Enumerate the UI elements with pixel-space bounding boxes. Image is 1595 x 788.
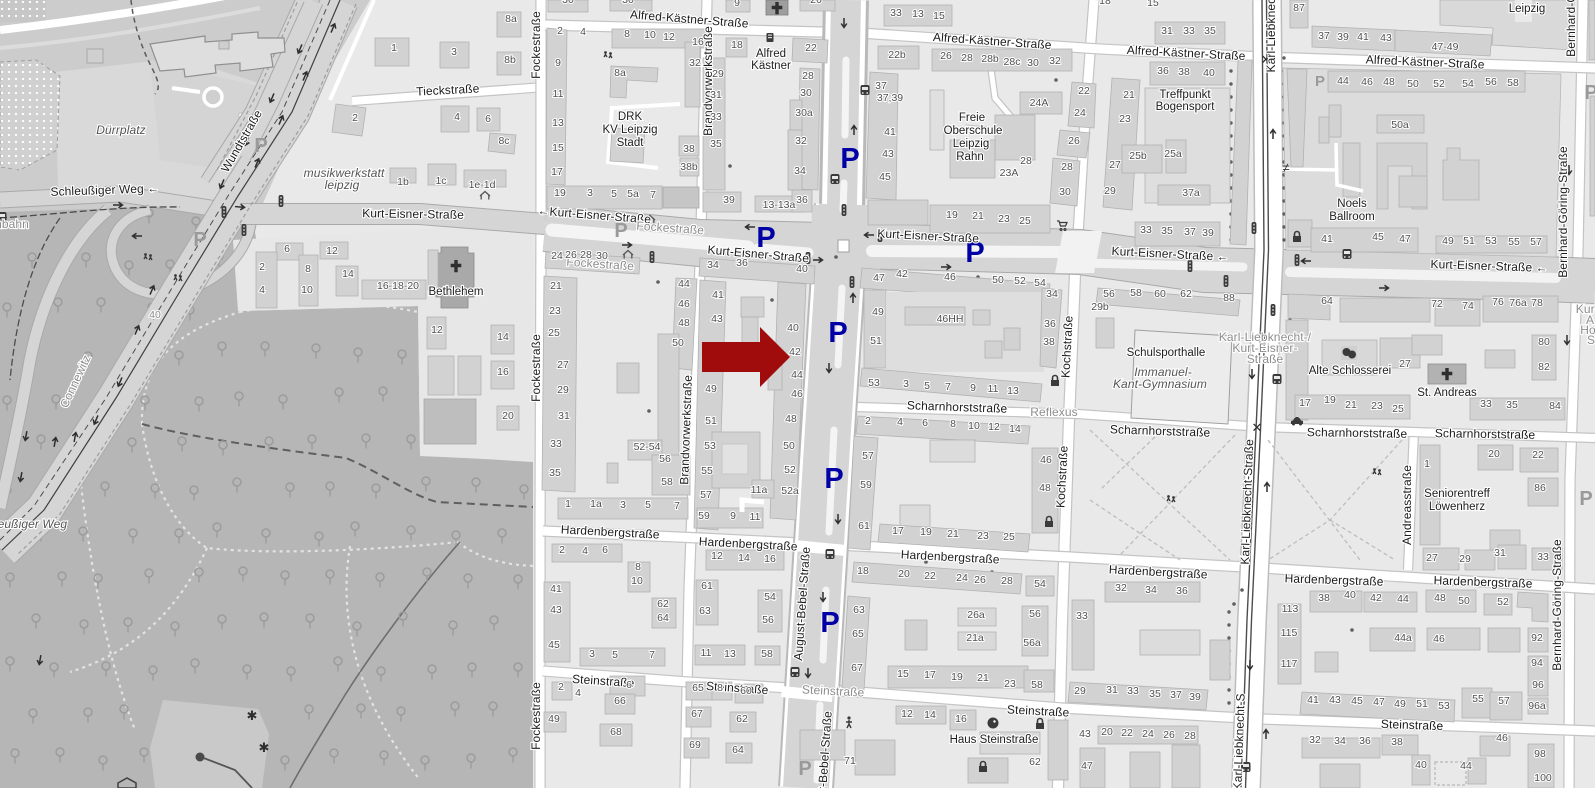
- svg-text:45: 45: [1351, 695, 1363, 707]
- svg-text:Bernhard-Göring-Straße: Bernhard-Göring-Straße: [1556, 146, 1570, 278]
- svg-text:43: 43: [550, 604, 562, 616]
- svg-text:21: 21: [977, 672, 989, 684]
- svg-text:56: 56: [659, 453, 671, 465]
- svg-text:8c: 8c: [498, 135, 509, 147]
- svg-text:56: 56: [1103, 288, 1115, 300]
- svg-text:49: 49: [548, 713, 560, 725]
- svg-text:62: 62: [657, 598, 669, 610]
- svg-text:60: 60: [1154, 288, 1166, 300]
- svg-text:57: 57: [1530, 236, 1542, 248]
- svg-text:64: 64: [732, 744, 744, 756]
- svg-text:50: 50: [1458, 595, 1470, 607]
- svg-text:Treffpunkt: Treffpunkt: [1159, 89, 1211, 101]
- svg-text:13: 13: [912, 8, 924, 20]
- svg-text:12: 12: [901, 708, 913, 720]
- svg-text:34: 34: [794, 165, 806, 177]
- svg-text:60: 60: [740, 685, 752, 697]
- svg-text:29: 29: [1459, 553, 1471, 565]
- svg-text:32: 32: [795, 135, 807, 147]
- svg-text:30: 30: [596, 250, 608, 262]
- svg-text:25b: 25b: [1129, 150, 1147, 162]
- svg-text:19: 19: [920, 526, 932, 538]
- svg-text:94: 94: [1531, 657, 1543, 669]
- svg-text:32: 32: [1049, 55, 1061, 67]
- svg-text:68: 68: [610, 726, 622, 738]
- svg-text:28b: 28b: [981, 53, 999, 65]
- svg-text:65: 65: [852, 628, 864, 640]
- svg-text:4: 4: [580, 26, 586, 38]
- svg-text:67: 67: [851, 662, 863, 674]
- svg-text:58: 58: [761, 648, 773, 660]
- svg-text:45: 45: [1372, 231, 1384, 243]
- svg-text:28: 28: [1184, 730, 1196, 742]
- svg-text:57: 57: [1498, 695, 1510, 707]
- svg-text:47: 47: [1081, 760, 1093, 772]
- svg-text:P: P: [828, 317, 847, 349]
- svg-text:49: 49: [1394, 698, 1406, 710]
- svg-text:21: 21: [550, 280, 562, 292]
- svg-text:S: S: [1587, 333, 1595, 347]
- svg-text:20: 20: [1488, 448, 1500, 460]
- svg-text:52: 52: [1497, 596, 1509, 608]
- svg-text:P: P: [820, 607, 839, 639]
- svg-text:40: 40: [796, 263, 808, 275]
- svg-text:20: 20: [502, 410, 514, 422]
- svg-text:18: 18: [731, 39, 743, 51]
- svg-text:44: 44: [1337, 75, 1349, 87]
- svg-text:18: 18: [857, 565, 869, 577]
- svg-text:14: 14: [738, 552, 750, 564]
- svg-text:Karl-Liebknecht: Karl-Liebknecht: [1264, 0, 1278, 72]
- svg-text:6: 6: [626, 679, 632, 691]
- svg-text:9: 9: [555, 57, 561, 69]
- svg-text:Rahn: Rahn: [956, 151, 984, 163]
- svg-text:17: 17: [551, 166, 563, 178]
- svg-text:30: 30: [562, 0, 574, 6]
- svg-text:26: 26: [810, 0, 822, 6]
- svg-text:13: 13: [552, 117, 564, 129]
- svg-text:50: 50: [783, 440, 795, 452]
- svg-text:11a: 11a: [751, 484, 768, 496]
- svg-text:2: 2: [352, 112, 358, 124]
- svg-text:39: 39: [723, 194, 735, 206]
- svg-text:72: 72: [1431, 298, 1443, 310]
- svg-text:22: 22: [924, 570, 936, 582]
- svg-text:8a: 8a: [614, 67, 626, 79]
- svg-text:57: 57: [700, 489, 712, 501]
- svg-text:34: 34: [707, 259, 719, 271]
- svg-text:37: 37: [1170, 689, 1182, 701]
- svg-text:22: 22: [805, 42, 817, 54]
- svg-text:32: 32: [1309, 734, 1321, 746]
- svg-text:43: 43: [1380, 32, 1392, 44]
- svg-text:47: 47: [873, 272, 885, 284]
- svg-text:26: 26: [1163, 729, 1175, 741]
- svg-text:56: 56: [1485, 76, 1497, 88]
- svg-text:53: 53: [704, 440, 716, 452]
- svg-text:62: 62: [1180, 288, 1192, 300]
- svg-text:35: 35: [1161, 225, 1173, 237]
- svg-text:35: 35: [549, 467, 561, 479]
- svg-text:46: 46: [944, 271, 956, 283]
- svg-text:15: 15: [933, 10, 945, 22]
- svg-text:nbahn: nbahn: [0, 217, 29, 231]
- svg-text:16: 16: [497, 366, 509, 378]
- svg-text:23: 23: [1371, 400, 1383, 412]
- svg-text:8: 8: [305, 263, 311, 275]
- svg-text:Stadt: Stadt: [617, 137, 645, 149]
- svg-text:55: 55: [701, 465, 713, 477]
- svg-text:37: 37: [1318, 30, 1330, 42]
- svg-text:55: 55: [1508, 236, 1520, 248]
- svg-text:Fockestraße: Fockestraße: [529, 11, 543, 79]
- svg-text:43: 43: [1329, 694, 1341, 706]
- svg-text:29b: 29b: [1091, 301, 1109, 313]
- svg-text:7: 7: [945, 381, 951, 393]
- svg-text:Scharnhorststraße: Scharnhorststraße: [1307, 425, 1408, 441]
- svg-text:Oberschule: Oberschule: [944, 125, 1003, 137]
- svg-text:16: 16: [692, 36, 704, 48]
- svg-text:21: 21: [947, 528, 959, 540]
- svg-text:Reflexus: Reflexus: [1030, 405, 1078, 419]
- svg-text:10: 10: [644, 29, 656, 41]
- svg-text:27: 27: [557, 359, 569, 371]
- svg-text:12: 12: [326, 245, 338, 257]
- svg-text:29: 29: [557, 384, 569, 396]
- svg-text:27: 27: [1426, 552, 1438, 564]
- svg-text:Leipzig: Leipzig: [953, 138, 989, 150]
- svg-text:86: 86: [1534, 482, 1546, 494]
- svg-text:46: 46: [791, 388, 803, 400]
- svg-text:65: 65: [692, 682, 704, 694]
- svg-text:24: 24: [1074, 107, 1086, 119]
- svg-text:P: P: [1579, 488, 1592, 510]
- svg-text:4: 4: [454, 111, 460, 123]
- svg-text:30: 30: [1027, 57, 1039, 69]
- svg-text:KV Leipzig: KV Leipzig: [603, 124, 658, 136]
- svg-text:20: 20: [898, 568, 910, 580]
- svg-text:1c: 1c: [435, 175, 446, 187]
- svg-text:16: 16: [955, 713, 967, 725]
- svg-text:34: 34: [1334, 735, 1346, 747]
- svg-text:40: 40: [1415, 759, 1427, 771]
- svg-text:56a: 56a: [1023, 637, 1041, 649]
- svg-text:59: 59: [860, 479, 872, 491]
- svg-text:50: 50: [1407, 78, 1419, 90]
- svg-text:3: 3: [903, 378, 909, 390]
- svg-text:39: 39: [1189, 691, 1201, 703]
- svg-text:26a: 26a: [967, 609, 985, 621]
- svg-text:Kurt-Eisner-Straße: Kurt-Eisner-Straße: [362, 206, 464, 222]
- svg-text:28: 28: [1061, 161, 1073, 173]
- svg-text:25a: 25a: [1164, 148, 1182, 160]
- svg-text:48: 48: [785, 413, 797, 425]
- svg-text:14: 14: [342, 268, 354, 280]
- svg-text:P: P: [254, 135, 267, 157]
- svg-text:36: 36: [1359, 735, 1371, 747]
- svg-text:5: 5: [612, 649, 618, 661]
- svg-text:46: 46: [1040, 454, 1052, 466]
- svg-text:14: 14: [924, 709, 936, 721]
- svg-text:2: 2: [865, 415, 871, 427]
- svg-text:33: 33: [1076, 610, 1088, 622]
- svg-text:36: 36: [1176, 585, 1188, 597]
- svg-text:46: 46: [1496, 732, 1508, 744]
- svg-text:28: 28: [1001, 575, 1013, 587]
- svg-text:36: 36: [736, 257, 748, 269]
- svg-text:31: 31: [1161, 25, 1173, 37]
- svg-text:5: 5: [645, 499, 651, 511]
- svg-text:23: 23: [1119, 113, 1131, 125]
- svg-text:76a: 76a: [1509, 297, 1527, 309]
- svg-text:P: P: [824, 463, 843, 495]
- svg-text:49: 49: [1442, 235, 1454, 247]
- svg-text:71: 71: [844, 755, 856, 767]
- svg-text:29: 29: [712, 68, 724, 80]
- svg-text:19: 19: [951, 671, 963, 683]
- svg-text:8: 8: [717, 682, 723, 694]
- svg-text:1e-1d: 1e-1d: [469, 179, 496, 191]
- svg-text:46: 46: [1361, 76, 1373, 88]
- svg-text:30: 30: [800, 87, 812, 99]
- svg-text:44: 44: [1397, 593, 1409, 605]
- svg-text:19: 19: [946, 209, 958, 221]
- svg-text:96: 96: [1532, 679, 1544, 691]
- svg-text:5: 5: [611, 188, 617, 200]
- svg-text:66: 66: [614, 695, 626, 707]
- svg-text:31: 31: [710, 89, 722, 101]
- svg-text:38: 38: [1391, 736, 1403, 748]
- svg-text:22b: 22b: [888, 49, 906, 61]
- svg-text:22: 22: [1078, 85, 1090, 97]
- svg-text:63: 63: [699, 605, 711, 617]
- svg-text:52: 52: [784, 464, 796, 476]
- svg-text:29: 29: [1104, 185, 1116, 197]
- svg-text:10: 10: [301, 284, 313, 296]
- svg-text:33: 33: [1140, 224, 1152, 236]
- svg-text:1: 1: [1424, 458, 1430, 470]
- svg-text:38b: 38b: [680, 161, 698, 173]
- svg-text:8: 8: [624, 28, 630, 40]
- svg-text:35: 35: [1149, 688, 1161, 700]
- svg-text:39: 39: [1337, 31, 1349, 43]
- svg-text:100: 100: [1534, 772, 1552, 784]
- svg-text:41: 41: [1357, 31, 1369, 43]
- svg-text:9: 9: [734, 0, 740, 9]
- svg-text:84: 84: [1549, 400, 1561, 412]
- svg-text:31: 31: [1494, 547, 1506, 559]
- svg-text:80: 80: [1538, 336, 1550, 348]
- svg-text:64: 64: [1321, 295, 1333, 307]
- svg-text:62: 62: [1029, 756, 1041, 768]
- svg-text:115: 115: [1281, 627, 1298, 639]
- svg-text:Dürrplatz: Dürrplatz: [96, 123, 146, 137]
- svg-text:20: 20: [1101, 726, 1113, 738]
- svg-text:27: 27: [1109, 159, 1121, 171]
- svg-text:Alte Schlosserei: Alte Schlosserei: [1309, 365, 1391, 377]
- svg-text:Straße: Straße: [1247, 352, 1284, 366]
- svg-text:41: 41: [884, 126, 896, 138]
- svg-text:59: 59: [698, 510, 710, 522]
- svg-text:35: 35: [1506, 399, 1518, 411]
- svg-text:31: 31: [1106, 684, 1118, 696]
- svg-text:33: 33: [710, 111, 722, 123]
- svg-text:7: 7: [674, 500, 680, 512]
- svg-text:39: 39: [1202, 227, 1214, 239]
- svg-text:74: 74: [1462, 300, 1474, 312]
- svg-text:34: 34: [1145, 584, 1157, 596]
- svg-text:Bernhard-Göring-Straße: Bernhard-Göring-Straße: [1550, 539, 1564, 671]
- svg-text:50: 50: [992, 274, 1004, 286]
- svg-text:48: 48: [1383, 76, 1395, 88]
- svg-text:Fockestraße: Fockestraße: [529, 334, 543, 402]
- svg-text:33: 33: [1480, 398, 1492, 410]
- svg-text:6: 6: [602, 544, 608, 556]
- svg-text:92: 92: [1531, 632, 1543, 644]
- svg-text:9: 9: [730, 510, 736, 522]
- svg-text:48: 48: [1039, 482, 1051, 494]
- svg-text:4: 4: [259, 284, 265, 296]
- svg-text:Fockestraße: Fockestraße: [529, 682, 543, 750]
- svg-text:St. Andreas: St. Andreas: [1417, 387, 1477, 399]
- svg-text:47: 47: [1399, 233, 1411, 245]
- svg-text:26: 26: [565, 249, 577, 261]
- svg-text:12: 12: [711, 550, 723, 562]
- svg-text:25: 25: [548, 327, 560, 339]
- svg-text:58: 58: [1031, 679, 1043, 691]
- svg-text:Freie: Freie: [959, 112, 985, 124]
- svg-text:37a: 37a: [1182, 187, 1200, 199]
- svg-text:24: 24: [551, 250, 563, 262]
- svg-text:Andreasstraße: Andreasstraße: [1400, 465, 1414, 545]
- svg-text:28: 28: [802, 70, 814, 82]
- svg-text:11: 11: [988, 383, 999, 395]
- svg-text:36: 36: [796, 194, 808, 206]
- svg-text:37: 37: [1184, 226, 1196, 238]
- svg-text:28c: 28c: [1004, 56, 1021, 68]
- svg-text:35: 35: [710, 138, 722, 150]
- svg-text:8a: 8a: [505, 13, 517, 25]
- svg-text:P: P: [1315, 73, 1325, 90]
- svg-text:88: 88: [1223, 292, 1235, 304]
- svg-text:51: 51: [1463, 235, 1475, 247]
- svg-text:30a: 30a: [795, 107, 813, 119]
- svg-text:62: 62: [736, 713, 748, 725]
- svg-text:58: 58: [1507, 77, 1519, 89]
- svg-text:24: 24: [1142, 728, 1154, 740]
- svg-text:2: 2: [259, 261, 265, 273]
- svg-text:25: 25: [1392, 403, 1404, 415]
- svg-text:4: 4: [897, 416, 903, 428]
- svg-text:35: 35: [1204, 25, 1216, 37]
- svg-text:✱: ✱: [259, 740, 270, 755]
- svg-text:8: 8: [635, 561, 641, 573]
- svg-text:2: 2: [558, 681, 564, 693]
- svg-text:42: 42: [1370, 592, 1382, 604]
- svg-text:17: 17: [924, 669, 936, 681]
- svg-text:12: 12: [988, 421, 1000, 433]
- svg-text:67: 67: [691, 708, 703, 720]
- svg-text:30: 30: [622, 0, 634, 6]
- svg-text:14: 14: [497, 331, 509, 343]
- svg-text:24A: 24A: [1030, 97, 1049, 109]
- svg-text:40: 40: [1344, 589, 1356, 601]
- svg-text:47: 47: [1373, 696, 1385, 708]
- svg-text:41: 41: [550, 583, 562, 595]
- svg-text:43: 43: [711, 313, 723, 325]
- svg-text:57: 57: [862, 450, 874, 462]
- svg-text:40: 40: [787, 322, 799, 334]
- svg-text:38: 38: [683, 143, 695, 155]
- svg-text:47-49: 47-49: [1432, 41, 1459, 53]
- svg-text:52: 52: [1014, 275, 1026, 287]
- svg-text:33: 33: [550, 438, 562, 450]
- svg-text:42: 42: [896, 268, 908, 280]
- svg-text:26: 26: [940, 50, 952, 62]
- svg-text:26: 26: [1068, 135, 1080, 147]
- svg-text:5: 5: [924, 380, 930, 392]
- svg-text:24: 24: [956, 572, 968, 584]
- svg-text:28: 28: [1020, 155, 1032, 167]
- svg-text:21: 21: [972, 210, 984, 222]
- svg-text:46HH: 46HH: [937, 313, 964, 325]
- svg-text:54: 54: [1462, 78, 1474, 90]
- svg-text:58: 58: [1130, 287, 1142, 299]
- svg-text:28: 28: [580, 249, 592, 261]
- svg-text:7: 7: [650, 189, 656, 201]
- svg-text:12: 12: [431, 324, 443, 336]
- svg-text:3: 3: [451, 46, 457, 58]
- svg-text:36: 36: [1044, 318, 1056, 330]
- svg-text:Alfred: Alfred: [756, 48, 786, 60]
- svg-text:41: 41: [1307, 694, 1319, 706]
- svg-text:64: 64: [657, 612, 669, 624]
- svg-text:Haus Steinstraße: Haus Steinstraße: [950, 734, 1039, 746]
- svg-text:23: 23: [1004, 678, 1016, 690]
- svg-text:14: 14: [1009, 423, 1021, 435]
- svg-text:23: 23: [977, 530, 989, 542]
- svg-text:12: 12: [663, 31, 675, 43]
- svg-text:22: 22: [1121, 727, 1133, 739]
- svg-text:46: 46: [1433, 633, 1445, 645]
- svg-text:53: 53: [1485, 235, 1497, 247]
- svg-text:leußiger Weg: leußiger Weg: [0, 517, 67, 531]
- svg-text:18: 18: [1099, 0, 1111, 7]
- svg-text:P: P: [1584, 82, 1595, 104]
- svg-text:3: 3: [620, 499, 626, 511]
- svg-text:51: 51: [870, 335, 882, 347]
- svg-text:63: 63: [853, 604, 865, 616]
- svg-text:49: 49: [705, 383, 717, 395]
- svg-text:✕: ✕: [1252, 420, 1263, 435]
- svg-text:98: 98: [1534, 748, 1546, 760]
- svg-text:16: 16: [764, 553, 776, 565]
- svg-text:96a: 96a: [1528, 700, 1546, 712]
- svg-text:23: 23: [998, 213, 1010, 225]
- svg-text:78: 78: [1531, 297, 1543, 309]
- svg-text:Steinstraße: Steinstraße: [1381, 717, 1444, 733]
- svg-text:Leipzig: Leipzig: [1509, 3, 1545, 15]
- svg-text:87: 87: [1293, 2, 1305, 14]
- svg-text:31: 31: [558, 410, 570, 422]
- svg-text:3: 3: [587, 187, 593, 199]
- svg-text:11: 11: [750, 511, 761, 523]
- svg-text:26: 26: [974, 574, 986, 586]
- svg-text:21: 21: [1345, 399, 1357, 411]
- svg-text:50: 50: [672, 337, 684, 349]
- svg-text:44: 44: [1460, 760, 1472, 772]
- svg-text:37;39: 37;39: [877, 92, 903, 104]
